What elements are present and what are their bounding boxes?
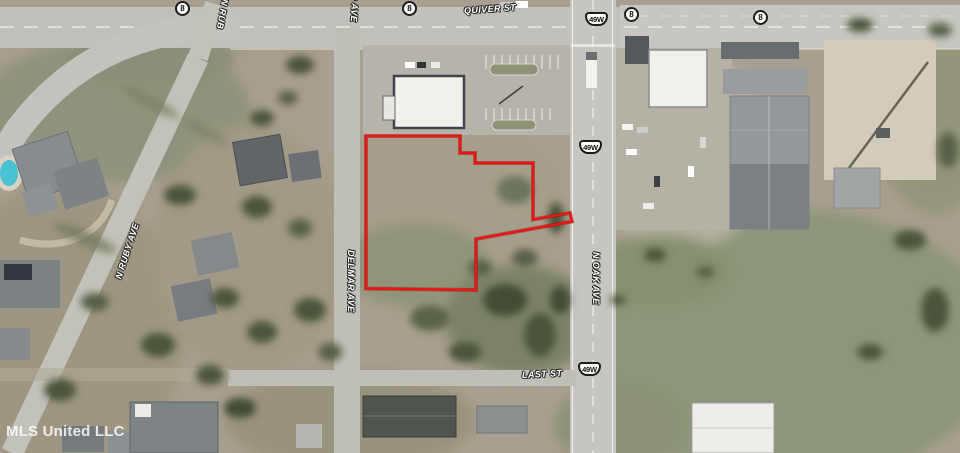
street-label-n-ruby-ave-north: N RUBY AVE (210, 0, 230, 30)
street-label-delmar-ave-north-clip: DELMAR AVE (338, 0, 364, 36)
satellite-map: QUIVER ST N RUBY AVE DELMAR AVE N RUBY A… (0, 0, 960, 453)
state-route-8-shield-icon: 8 (402, 1, 417, 16)
street-label-last-st: LAST ST (522, 368, 563, 380)
street-label-delmar-ave-north: DELMAR AVE (349, 0, 362, 22)
satellite-imagery (0, 0, 960, 453)
street-label-delmar-ave: DELMAR AVE (346, 250, 356, 313)
state-route-8-shield-icon: 8 (175, 1, 190, 16)
street-label-n-ruby-ave-north-clip: N RUBY AVE (204, 0, 232, 30)
state-route-8-shield-icon: 8 (753, 10, 768, 25)
street-label-n-oak-ave: N OAK AVE (591, 252, 601, 305)
state-route-8-shield-icon: 8 (624, 7, 639, 22)
watermark: MLS United LLC (6, 423, 125, 440)
